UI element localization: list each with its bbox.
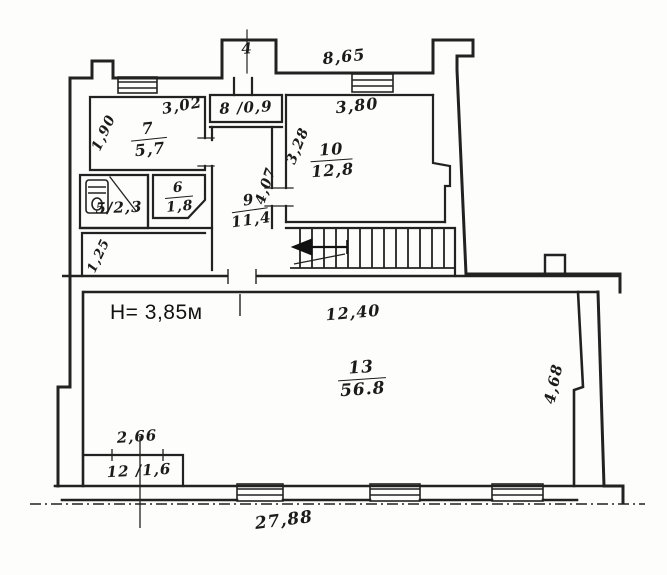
room-6-label: 6 1,8 [164,180,195,215]
room-area: 5,7 [134,140,166,159]
room-8-label: 8 /0,9 [219,99,273,117]
room-13-label: 13 56.8 [337,358,388,400]
room-number: 10 [319,141,344,159]
room-10-label: 10 12,8 [309,140,354,179]
dimension-ticks [112,436,163,528]
room-12-label: 12 /1,6 [106,462,171,480]
dim-room10-width: 3,80 [335,96,379,116]
dim-room12-width: 2,66 [116,428,157,446]
room-area: 12,8 [311,161,355,180]
room-area: 56.8 [340,380,386,400]
room-5-label: 5/2,3 [95,200,143,217]
floor-plan-drawing [0,0,667,575]
ceiling-height-note: H= 3,85м [110,302,203,323]
floor-plan-scan: H= 3,85м 4 7 5,7 8 /0,9 5/2,3 6 1,8 9 11… [0,0,667,575]
room-area: 1,8 [166,198,194,214]
window-hatches [118,74,543,501]
room-number: 6 [172,180,184,195]
room-7-label: 7 5,7 [129,119,169,159]
room-number: 7 [141,120,155,137]
dim-top-width: 8,65 [322,47,366,67]
dim-hall-top-width: 12,40 [325,303,381,324]
room-4-label: 4 [241,41,253,57]
room-number: 13 [348,359,375,378]
